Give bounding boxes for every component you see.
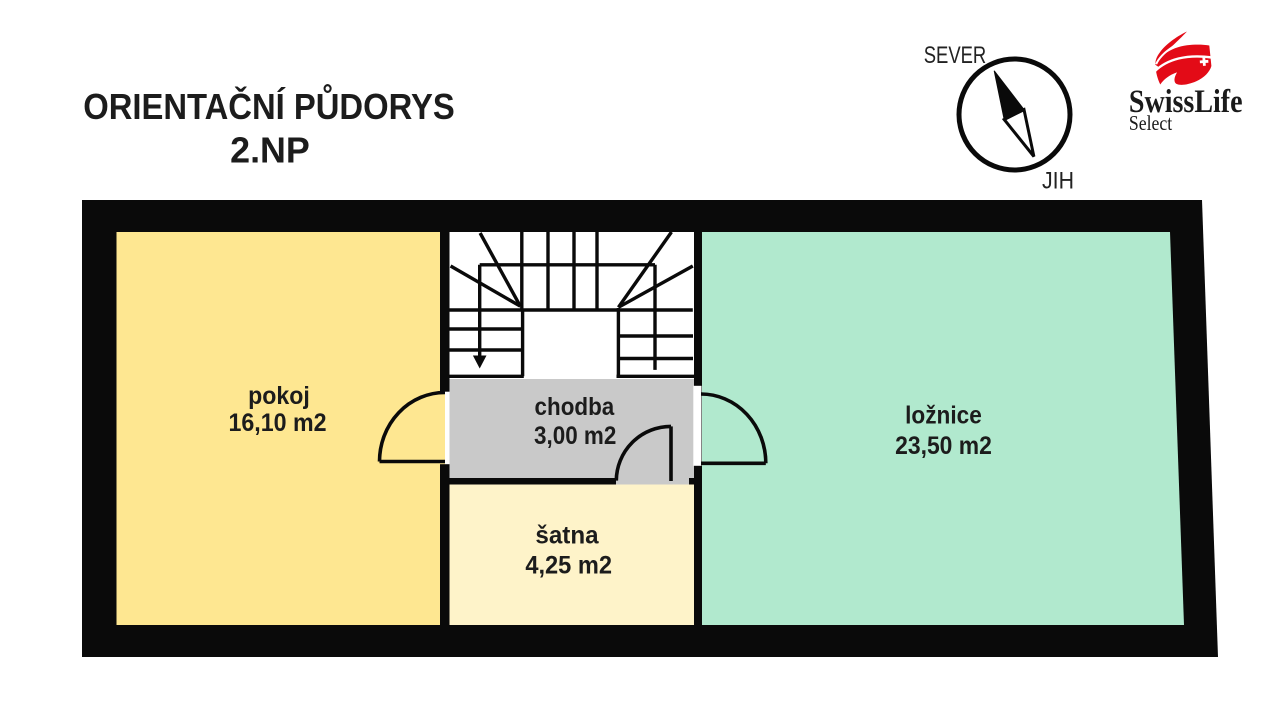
svg-text:pokoj: pokoj	[248, 382, 310, 410]
svg-text:chodba: chodba	[535, 393, 616, 421]
svg-text:2.NP: 2.NP	[230, 130, 310, 171]
svg-text:Select: Select	[1129, 113, 1173, 135]
svg-text:SEVER: SEVER	[924, 42, 987, 69]
svg-text:4,25 m2: 4,25 m2	[525, 552, 612, 580]
svg-text:3,00 m2: 3,00 m2	[534, 422, 616, 450]
svg-text:JIH: JIH	[1042, 168, 1074, 195]
svg-text:šatna: šatna	[535, 521, 599, 549]
svg-text:23,50 m2: 23,50 m2	[895, 432, 992, 460]
svg-text:ložnice: ložnice	[905, 401, 982, 429]
svg-text:16,10 m2: 16,10 m2	[228, 409, 326, 437]
svg-text:ORIENTAČNÍ PŮDORYS: ORIENTAČNÍ PŮDORYS	[83, 82, 455, 127]
